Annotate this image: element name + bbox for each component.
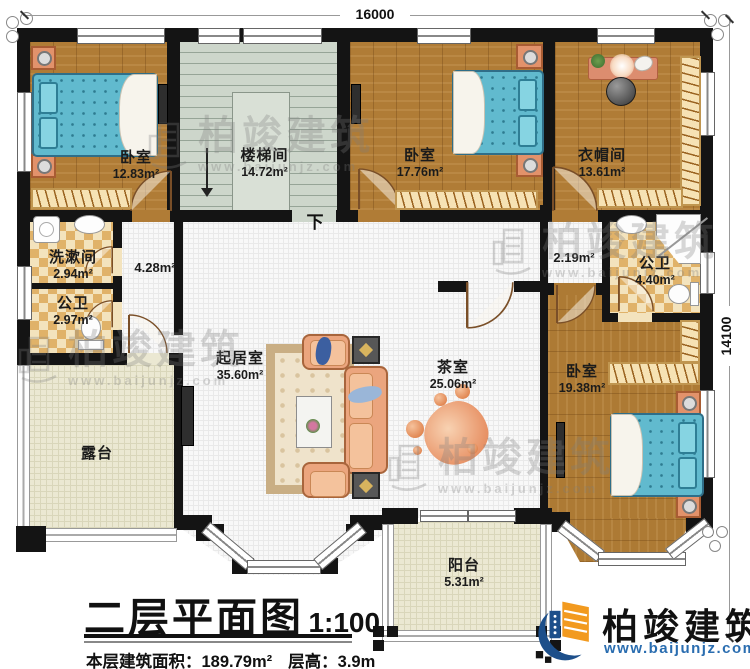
balcony-column-2 (387, 626, 398, 637)
room-name: 阳台 (424, 558, 504, 575)
wall-toilet-large-left (602, 213, 610, 317)
room-name: 卧室 (544, 364, 620, 381)
stair-arrow-head (201, 188, 213, 203)
armchair-bottom (302, 462, 350, 498)
room-area: 2.97m² (32, 313, 114, 327)
room-area: 19.38m² (544, 381, 620, 395)
bed-bedroom1 (32, 73, 158, 157)
label-balcony: 阳台 5.31m² (424, 558, 504, 589)
wall-tea-stub-left (438, 281, 468, 292)
wardrobe-bedroom3-top (608, 362, 700, 385)
tv-living (181, 386, 194, 446)
label-bedroom1: 卧室 12.83m² (86, 150, 186, 181)
window-living-bay-bottom (247, 560, 321, 574)
pillow (678, 457, 697, 489)
room-area: 12.83m² (86, 167, 186, 181)
title-underline-thin (84, 641, 352, 643)
stair-direction-label: 下 (300, 208, 330, 233)
room-name: 卧室 (86, 150, 186, 167)
nightstand (516, 44, 543, 69)
tea-art-dot (413, 446, 422, 455)
washing-machine-drum (39, 222, 54, 237)
room-name: 洗漱间 (32, 250, 114, 267)
title-underline-thick (84, 634, 352, 638)
sofa-main (344, 366, 388, 474)
room-area: 35.60m² (194, 368, 286, 382)
stair-arrow (206, 148, 208, 190)
sink-toilet-large (616, 215, 647, 234)
window-cloakroom-right (700, 72, 715, 136)
room-area: 14.72m² (212, 165, 317, 179)
room-name: 卧室 (370, 148, 470, 165)
opening-washroom (113, 248, 122, 276)
label-living: 起居室 35.60m² (194, 351, 286, 382)
room-name: 楼梯间 (212, 148, 317, 165)
pillow (39, 117, 58, 149)
window-cloakroom-top (597, 28, 655, 44)
tea-art-dot (434, 393, 447, 406)
label-toilet-large: 公卫 4.40m² (618, 256, 692, 287)
label-terrace: 露台 (62, 446, 132, 463)
flower-decor (306, 419, 320, 433)
desk-lamp-glow (610, 54, 634, 78)
tv-bedroom1 (158, 84, 168, 124)
room-area: 25.06m² (412, 377, 494, 391)
armchair-cushion (310, 471, 346, 497)
label-hall-east: 2.19m² (546, 250, 602, 265)
floor-height-value: 3.9m (338, 653, 376, 669)
brand-logo-icon (534, 594, 598, 666)
corner-turret-br-3 (709, 540, 721, 552)
pillow (518, 115, 537, 147)
terrace-corner-column (16, 526, 46, 552)
brand-logo: 柏竣建筑 www.baijunjz.com (534, 594, 744, 666)
title-subtitle: 本层建筑面积：189.79m² 层高：3.9m (86, 648, 375, 669)
label-washroom: 洗漱间 2.94m² (32, 250, 114, 281)
floor-area-label: 本层建筑面积： (86, 653, 202, 669)
opening-toilet-small (113, 302, 122, 330)
bed-sheet (119, 74, 157, 156)
brand-url: www.baijunjz.com (604, 640, 750, 657)
room-name: 衣帽间 (552, 148, 652, 165)
wardrobe-bedroom3-side (680, 320, 700, 363)
room-area: 2.94m² (32, 267, 114, 281)
label-tea: 茶室 25.06m² (412, 360, 494, 391)
nightstand (31, 154, 56, 178)
label-cloakroom: 衣帽间 13.61m² (552, 148, 652, 179)
room-name: 公卫 (618, 256, 692, 273)
label-bedroom3: 卧室 19.38m² (544, 364, 620, 395)
window-stair-top-1 (198, 28, 240, 44)
pillow (518, 79, 537, 111)
corner-turret-br-1 (702, 526, 714, 538)
label-hall-west: 4.28m² (122, 260, 188, 275)
wardrobe-bedroom1 (31, 188, 132, 209)
sink-washroom (74, 215, 105, 234)
bed-sheet (611, 414, 643, 496)
wall-bedroom3-left (540, 297, 548, 518)
bed-sheet (453, 71, 485, 154)
corner-turret-tl-3 (6, 30, 19, 43)
corner-turret-br-2 (716, 526, 728, 538)
door-bedroom3 (556, 284, 596, 324)
wall-washroom-right (113, 213, 122, 353)
window-bedroom1-left (17, 92, 32, 172)
coffee-table (296, 396, 332, 448)
room-name: 茶室 (412, 360, 494, 377)
tv-bedroom2 (351, 84, 361, 124)
stair-flight-top (232, 42, 288, 92)
nightstand (516, 152, 543, 177)
bed-bedroom2 (452, 70, 544, 155)
balcony-wall-stub-left (382, 508, 418, 524)
corner-turret-tl-1 (6, 16, 19, 29)
room-area: 17.76m² (370, 165, 470, 179)
window-bedroom2-top (417, 28, 471, 44)
door-terrace (128, 314, 168, 354)
balcony-rail-bottom (382, 630, 552, 642)
bed-bedroom3 (610, 413, 704, 497)
tea-art-dot (467, 443, 478, 454)
wardrobe-cloakroom-bottom (597, 188, 683, 208)
nightstand (676, 391, 701, 415)
room-area: 5.31m² (424, 575, 504, 589)
room-name: 公卫 (32, 296, 114, 313)
plant-on-desk (591, 54, 605, 68)
balcony-door-panel-2 (468, 510, 516, 522)
wall-washroom-toilet-divider (30, 283, 113, 289)
label-stairwell: 楼梯间 14.72m² (212, 148, 317, 179)
dim-top-value: 16000 (340, 6, 410, 22)
wall-tea-stub-right (514, 281, 544, 292)
pillow (678, 422, 697, 454)
terrace-rail-bottom (28, 528, 177, 542)
window-washroom-left (17, 266, 32, 320)
nightstand (676, 494, 701, 518)
room-name: 起居室 (194, 351, 286, 368)
opening-terrace (127, 353, 169, 365)
wall-stair-bedroom2 (337, 42, 350, 212)
tv-bedroom3 (556, 422, 565, 478)
toilet-small-tank (78, 340, 104, 350)
terrace-rail-left (17, 365, 30, 530)
floor-height-label: 层高： (288, 653, 338, 669)
dim-right-value: 14100 (718, 306, 734, 366)
nightstand (31, 46, 56, 70)
sofa-cushion (349, 423, 373, 469)
room-name: 露台 (62, 446, 132, 463)
side-table-top (352, 336, 380, 364)
balcony-door-panel-1 (420, 510, 468, 522)
wardrobe-cloakroom-right (680, 56, 701, 206)
toilet-large-bowl (668, 284, 690, 304)
opening-toilet-large (618, 313, 652, 322)
room-area: 4.40m² (618, 273, 692, 287)
room-area: 13.61m² (552, 165, 652, 179)
side-table-bottom (352, 472, 380, 499)
label-toilet-small: 公卫 2.97m² (32, 296, 114, 327)
window-stair-top-2 (243, 28, 322, 44)
wardrobe-bedroom2 (395, 190, 538, 210)
label-bedroom2: 卧室 17.76m² (370, 148, 470, 179)
door-tea-room (466, 281, 514, 329)
corner-turret-tr-3 (711, 28, 724, 41)
stair-flight-right (288, 42, 337, 210)
window-toilet-large-right (700, 252, 715, 294)
pillow (39, 82, 58, 114)
floor-area-value: 189.79m² (202, 653, 273, 669)
opening-bedroom2 (358, 210, 400, 222)
chair-cloakroom (606, 77, 636, 106)
tea-art-dot (406, 420, 424, 438)
window-bedroom1-top (77, 28, 165, 44)
floor-plan: 卧室 12.83m² 楼梯间 14.72m² 卧室 17.76m² 衣帽间 13… (0, 0, 750, 669)
